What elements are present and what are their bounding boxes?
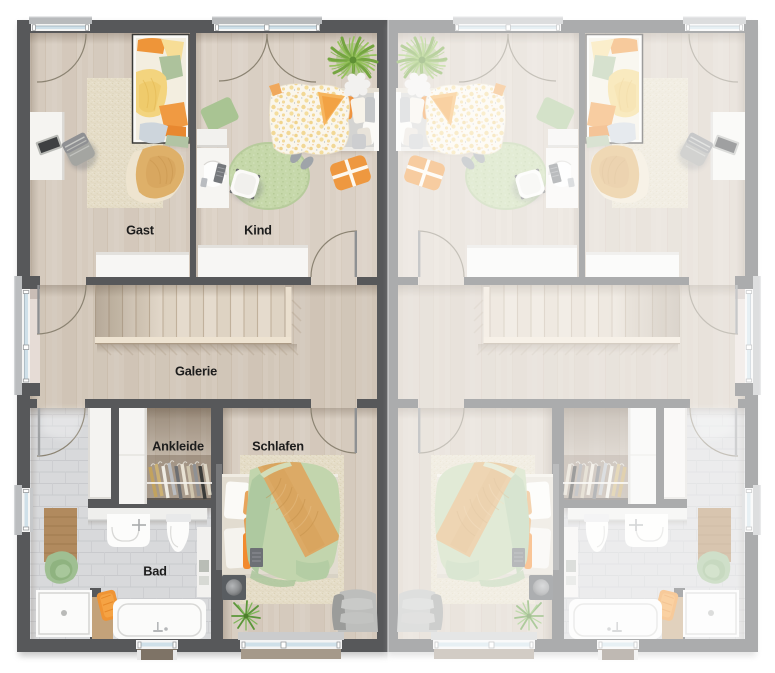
svg-text:Ankleide: Ankleide	[152, 439, 204, 454]
svg-text:Bad: Bad	[143, 564, 167, 579]
svg-text:Gast: Gast	[126, 223, 155, 238]
svg-text:Galerie: Galerie	[175, 364, 217, 379]
svg-text:Kind: Kind	[244, 223, 272, 238]
svg-text:Schlafen: Schlafen	[252, 439, 304, 454]
